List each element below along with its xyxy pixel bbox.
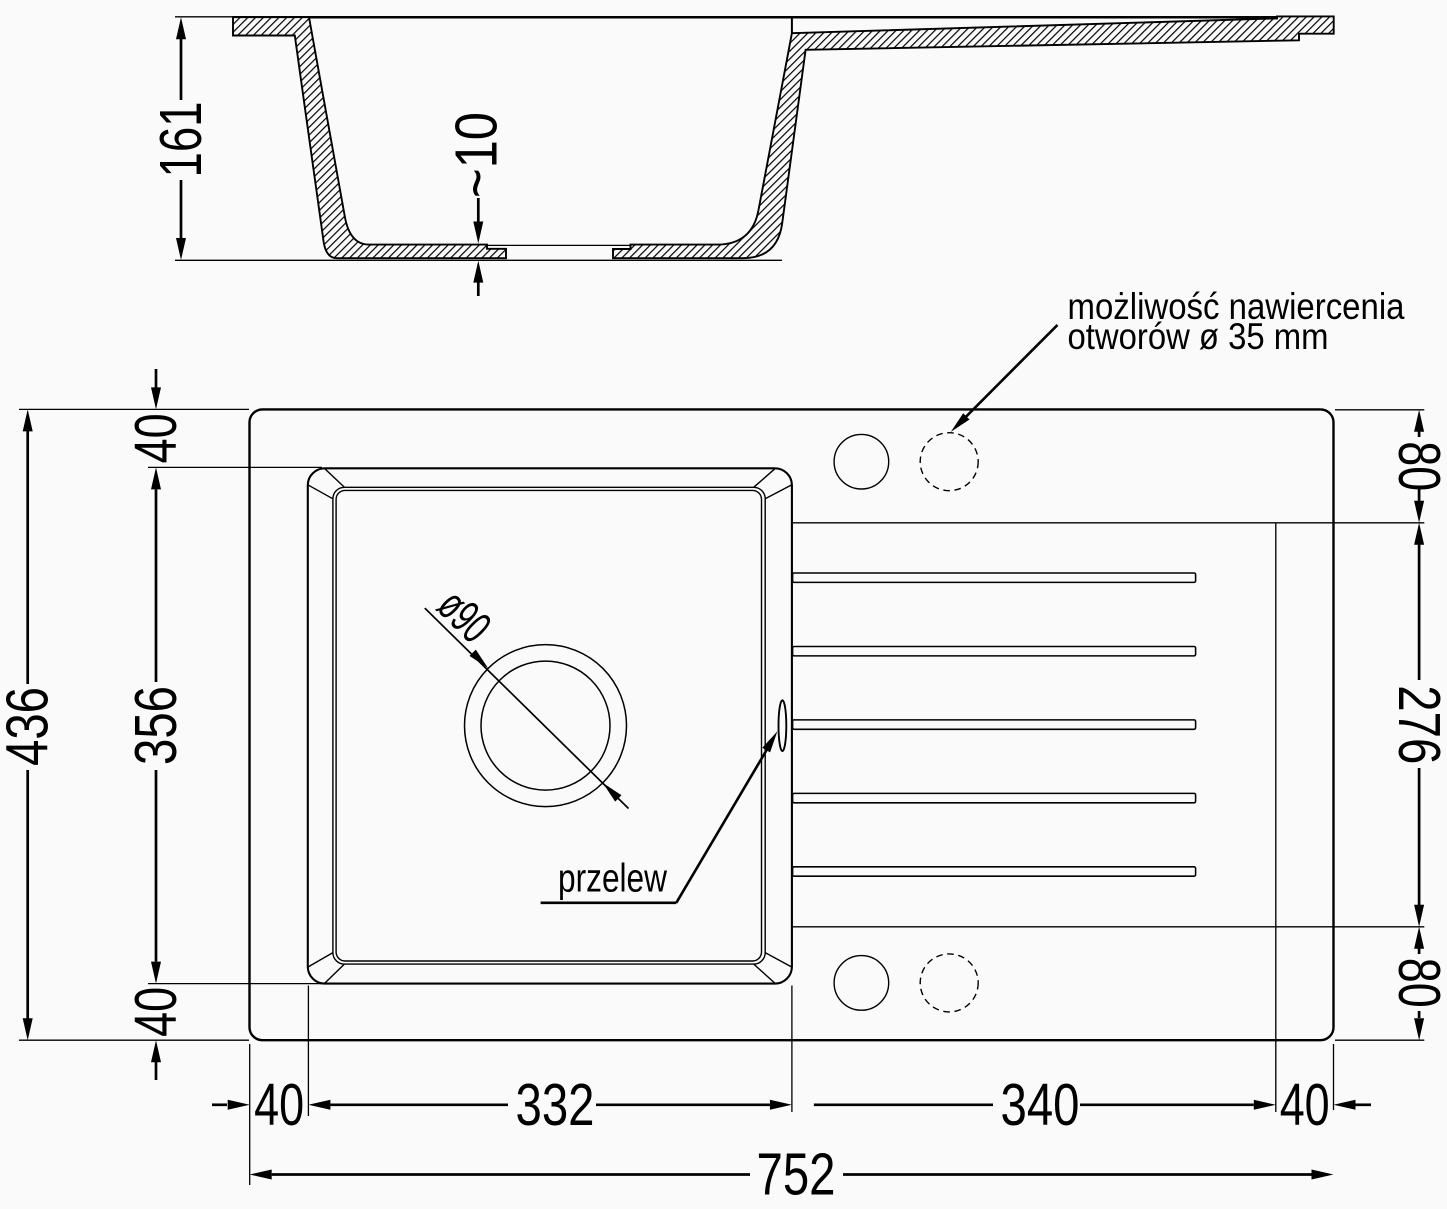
svg-text:80: 80 — [1386, 958, 1447, 1008]
svg-text:332: 332 — [516, 1072, 595, 1138]
svg-text:356: 356 — [123, 686, 189, 765]
svg-text:otworów ø 35 mm: otworów ø 35 mm — [1068, 316, 1329, 357]
svg-text:340: 340 — [1001, 1072, 1080, 1138]
svg-text:40: 40 — [1280, 1072, 1330, 1138]
svg-text:40: 40 — [254, 1072, 304, 1138]
svg-text:276: 276 — [1386, 685, 1447, 764]
svg-text:40: 40 — [123, 413, 189, 463]
svg-text:436: 436 — [0, 687, 61, 766]
svg-text:80: 80 — [1386, 441, 1447, 491]
svg-text:40: 40 — [123, 987, 189, 1037]
svg-text:~10: ~10 — [444, 112, 510, 198]
svg-text:przelew: przelew — [558, 856, 667, 900]
svg-text:161: 161 — [148, 102, 214, 178]
svg-text:752: 752 — [757, 1142, 836, 1208]
